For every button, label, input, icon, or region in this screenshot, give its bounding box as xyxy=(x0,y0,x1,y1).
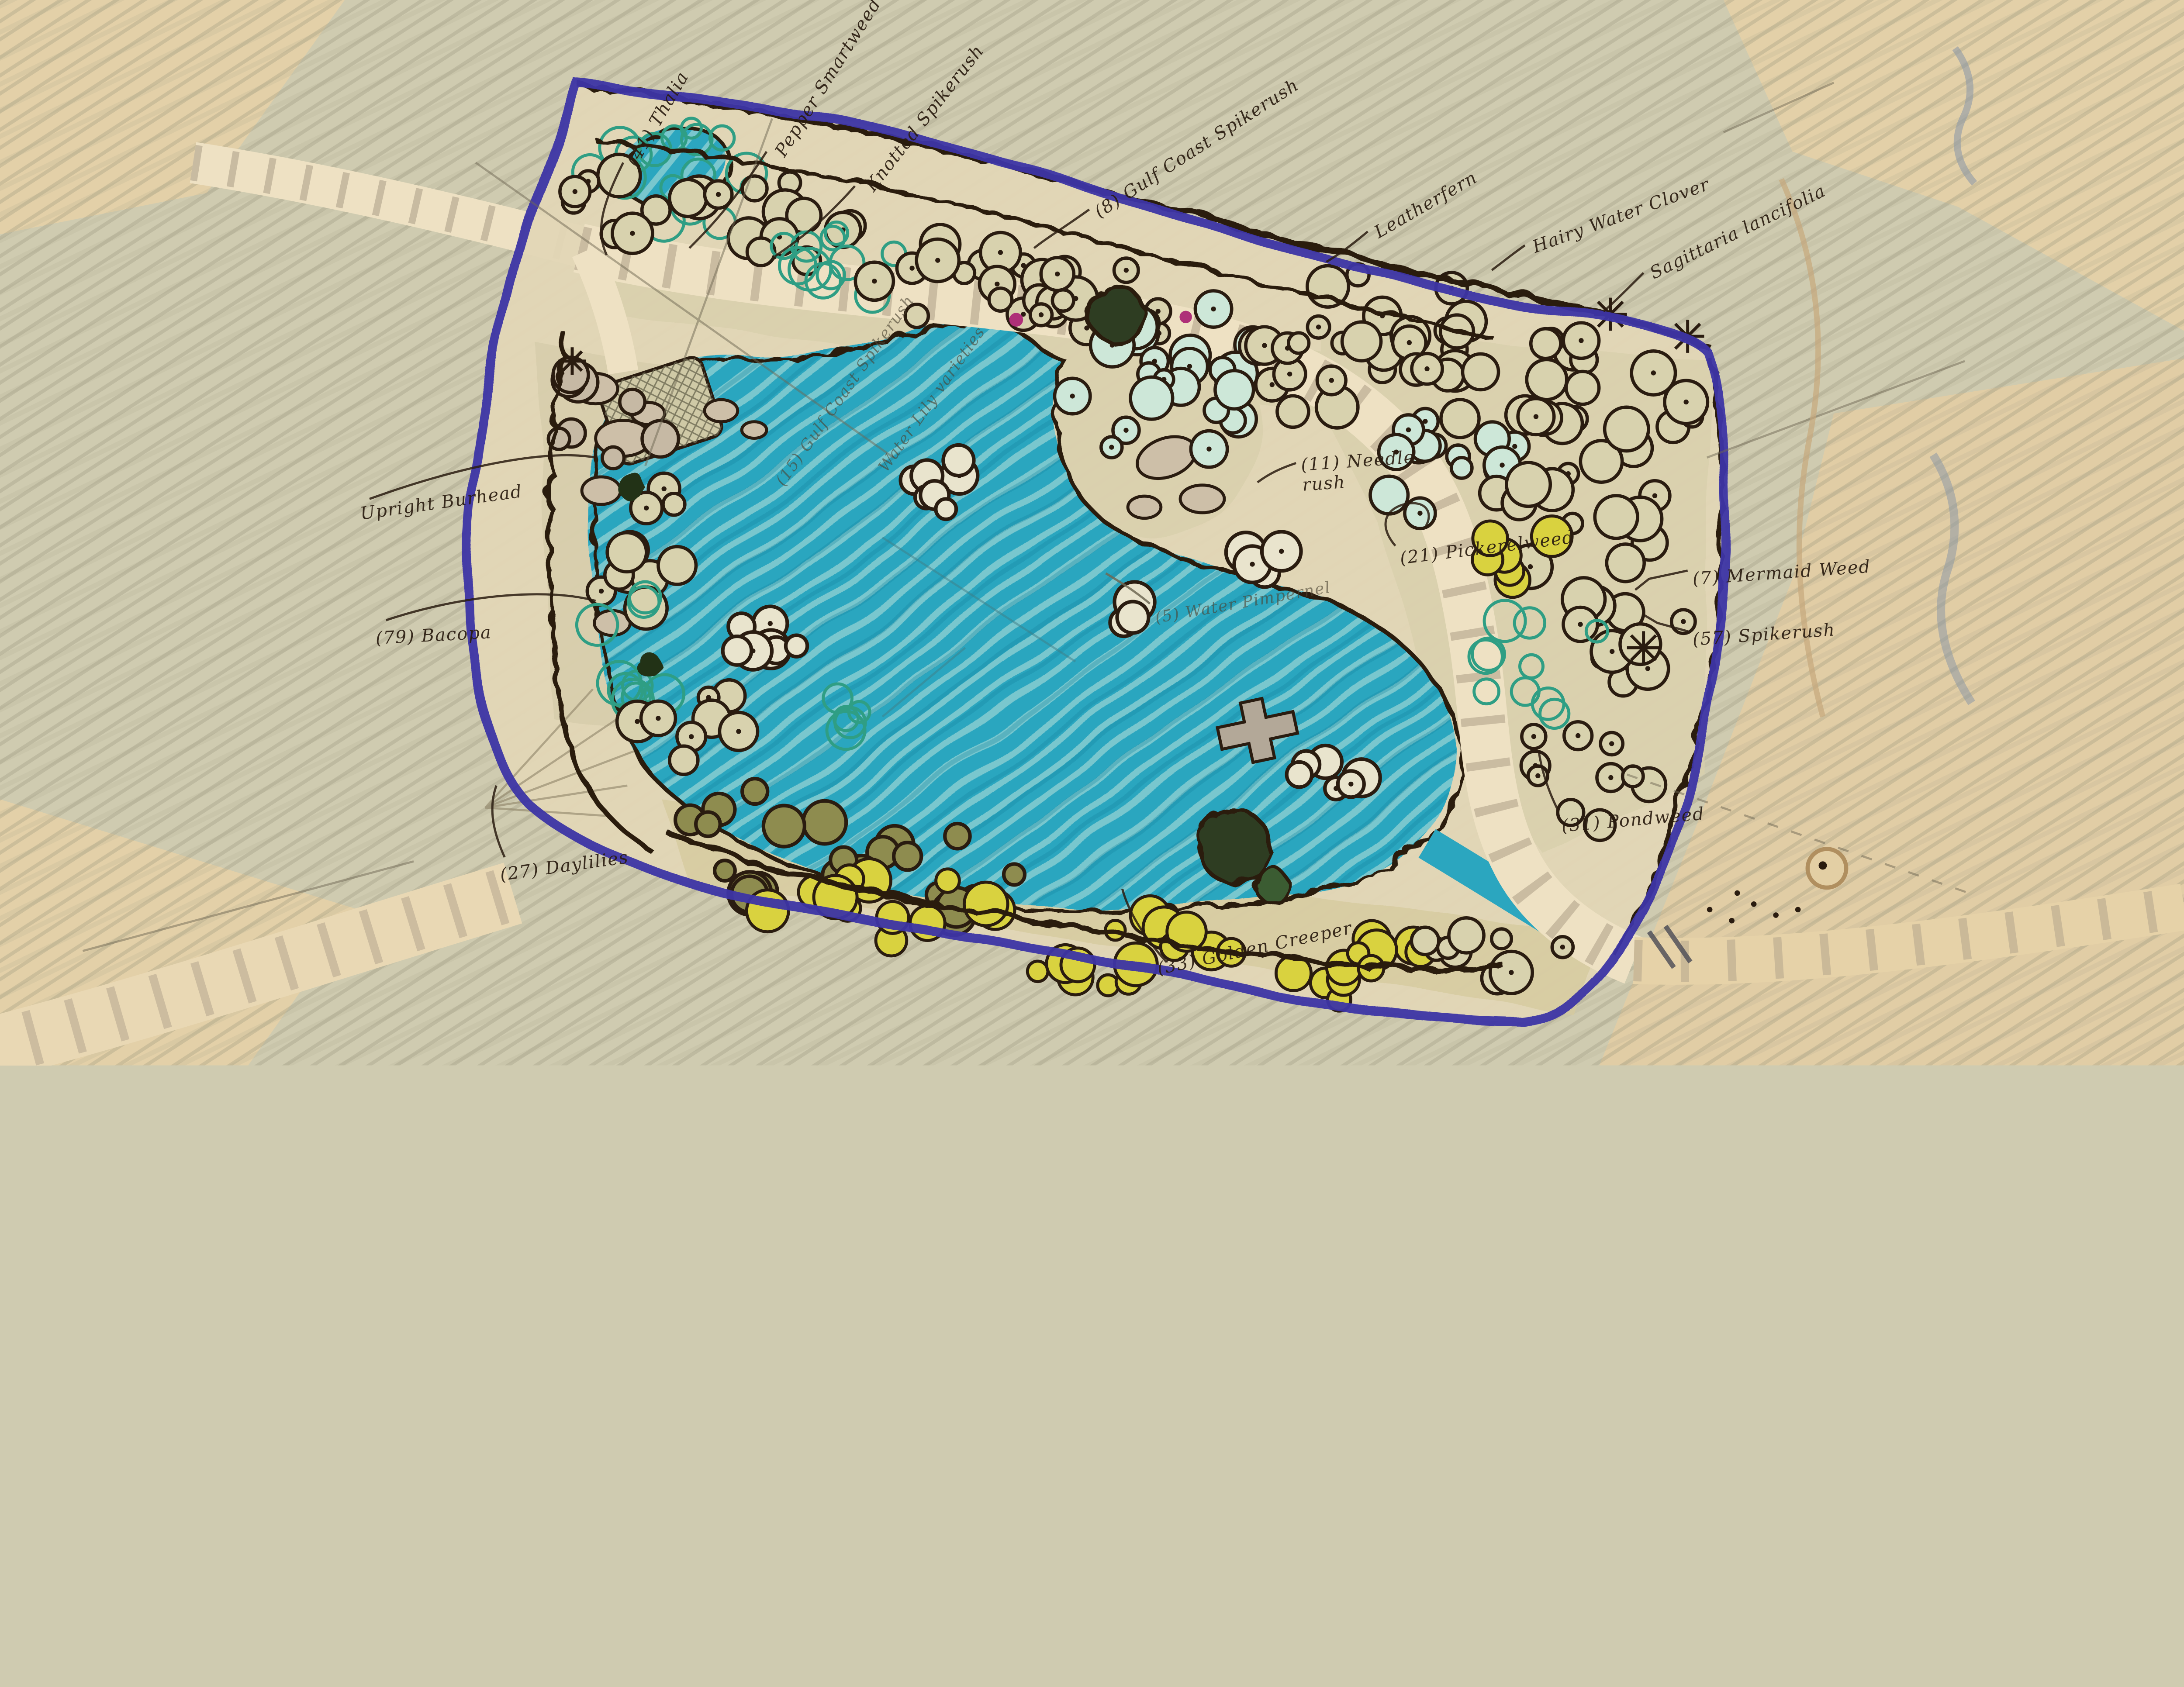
landscape-plan-canvas: (41) ThaliaPepper SmartweedKnotted Spike… xyxy=(0,0,2184,1066)
plan-artwork xyxy=(0,0,2184,1066)
